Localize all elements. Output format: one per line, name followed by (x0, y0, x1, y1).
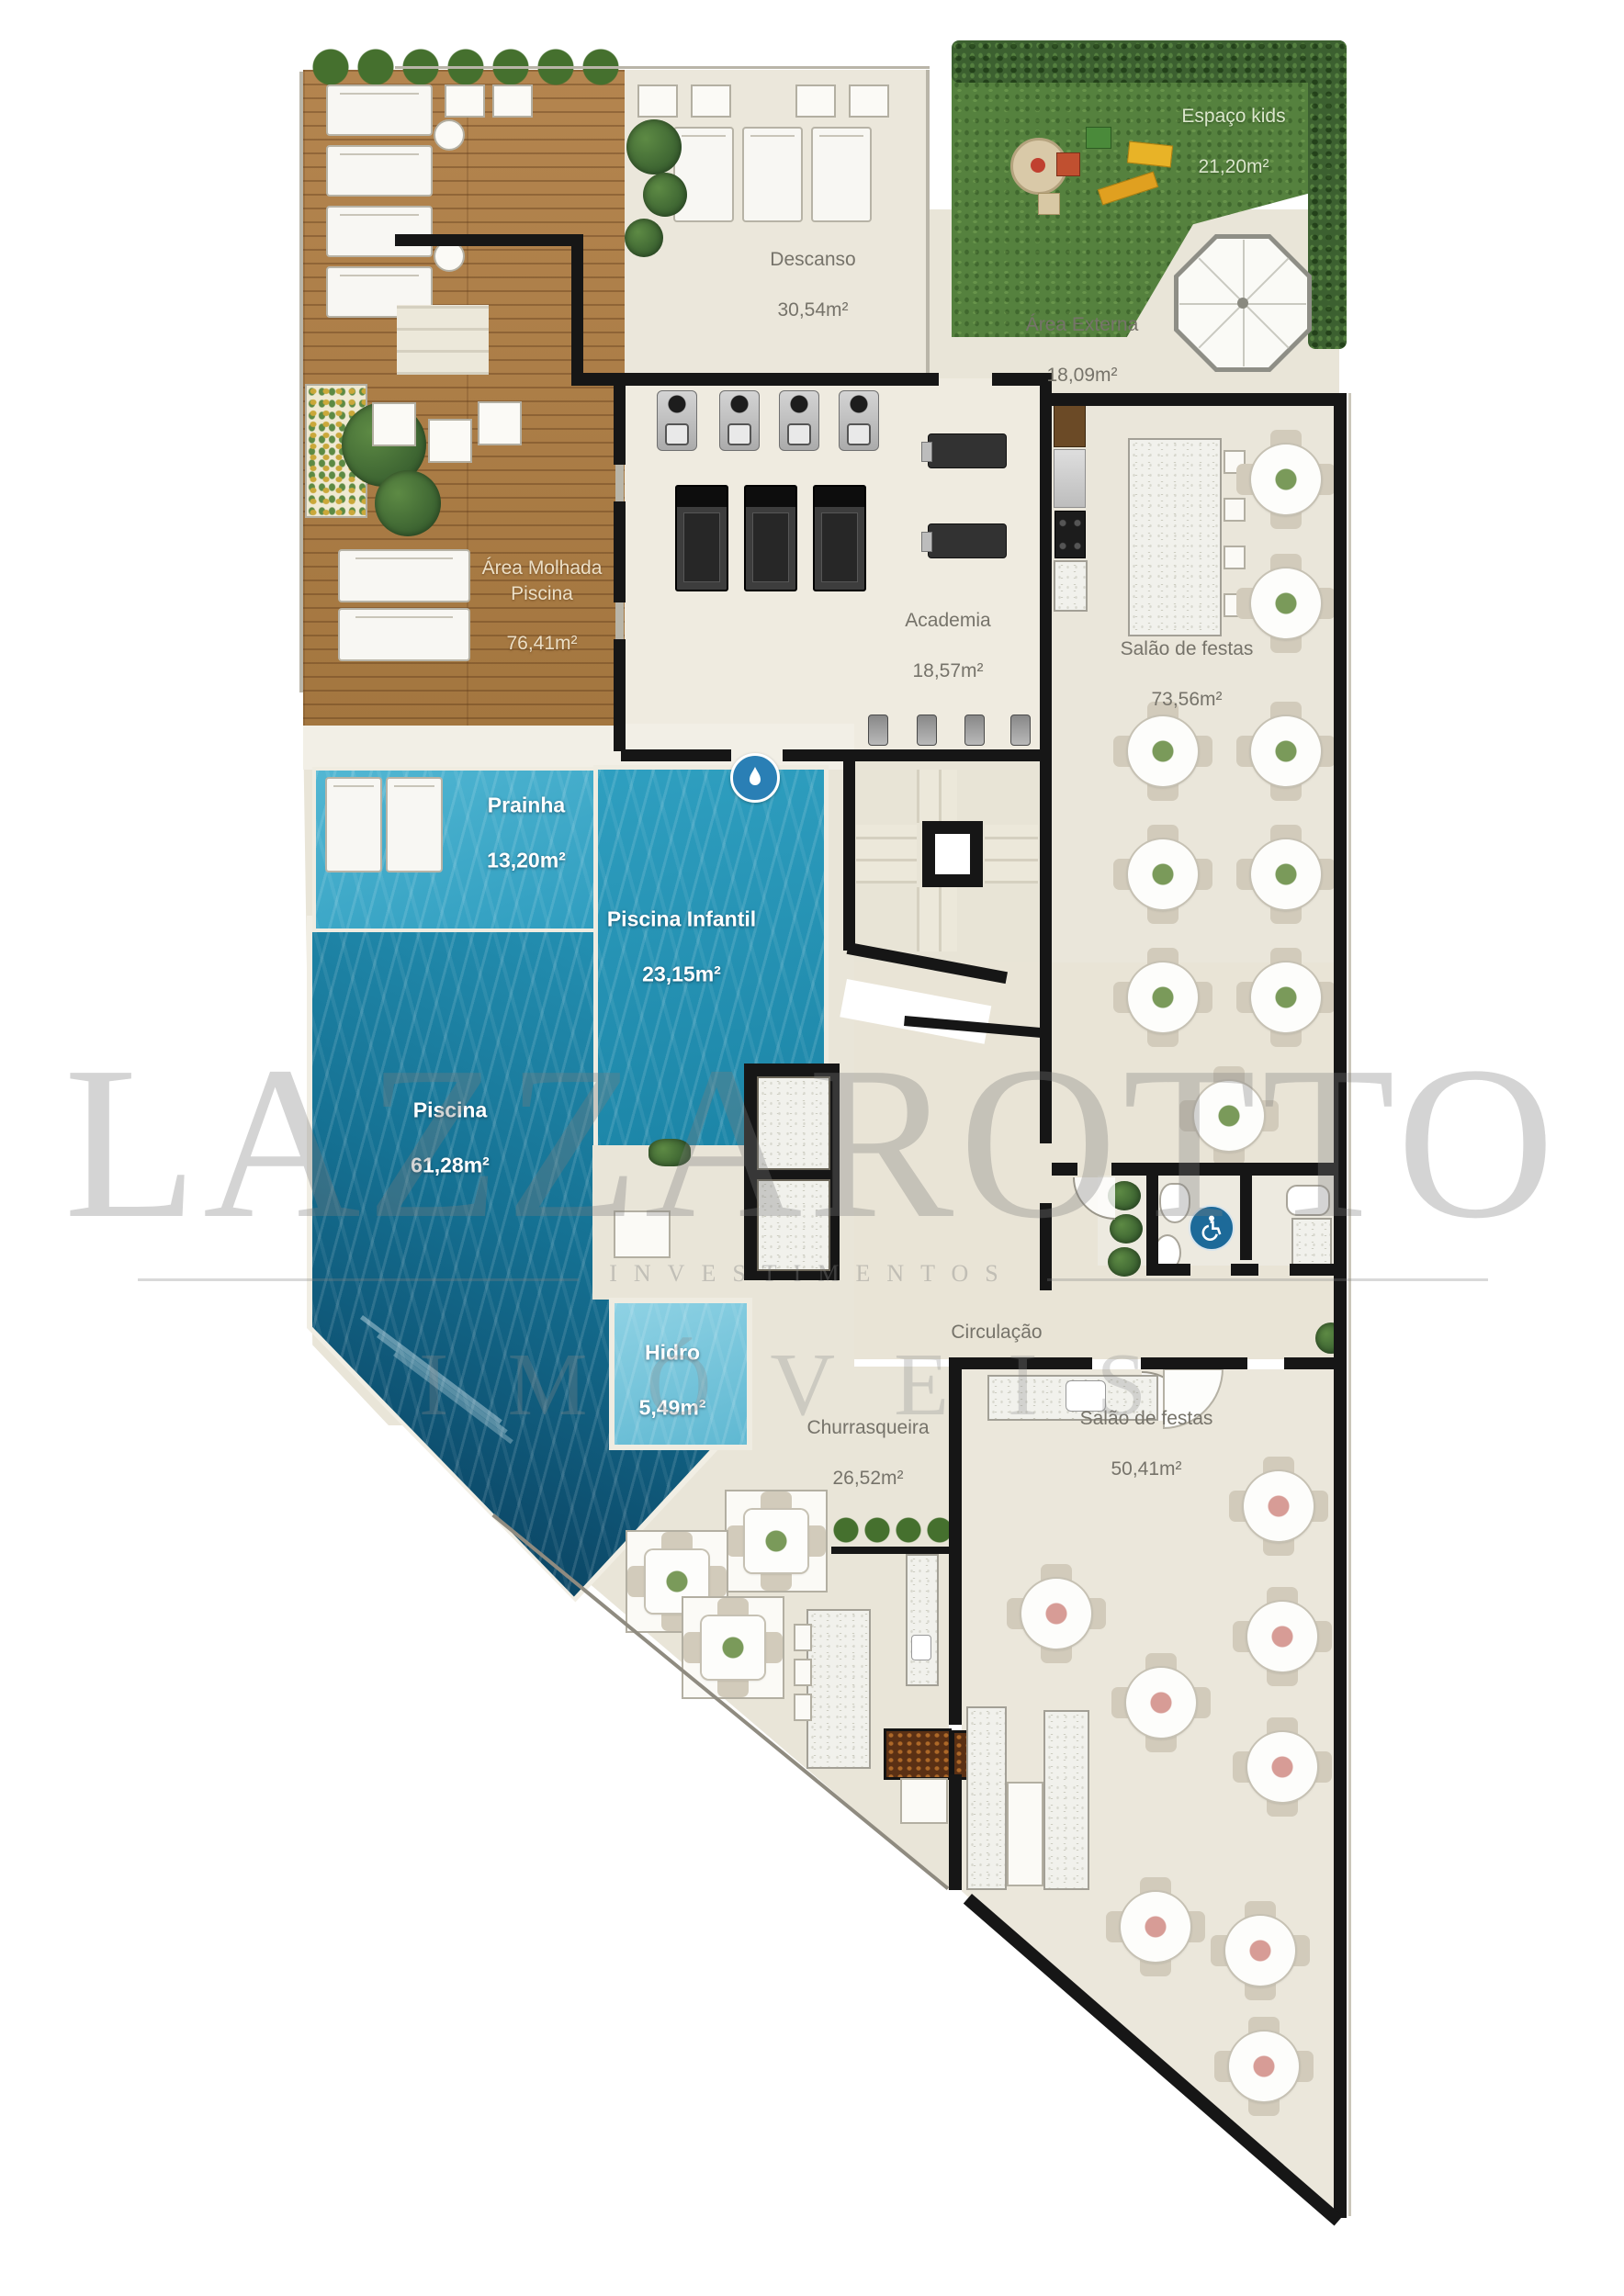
accessible-badge (1189, 1205, 1235, 1251)
room-name: Circulação (951, 1320, 1042, 1345)
party-table (1229, 1457, 1328, 1556)
room-area: 61,28m² (411, 1152, 490, 1179)
chair (1113, 982, 1135, 1013)
room-area: 21,20m² (1181, 154, 1285, 179)
wall (614, 373, 626, 465)
exercise-bike (719, 390, 760, 451)
chair (1007, 1598, 1029, 1629)
room-area: 13,20m² (487, 847, 566, 874)
label-piscina-infantil: Piscina Infantil 23,15m² (607, 878, 756, 1015)
shower-fixture (492, 84, 533, 118)
deck-steps (397, 305, 489, 375)
weight-machine (928, 433, 1007, 468)
label-prainha: Prainha 13,20m² (487, 764, 566, 901)
play-block-green (1086, 127, 1111, 149)
buffet-counter (966, 1706, 1007, 1890)
buffet-counter (1043, 1710, 1089, 1890)
watermark-rule (1047, 1278, 1488, 1281)
treadmill (744, 485, 797, 591)
kitchen-counter (1054, 449, 1086, 508)
wall (614, 639, 626, 751)
chair (1236, 859, 1258, 890)
chair (1233, 1751, 1255, 1783)
sun-lounger (326, 145, 433, 197)
room-area: 50,41m² (1080, 1457, 1213, 1481)
label-churrasqueira: Churrasqueira 26,52m² (806, 1390, 929, 1515)
stair-flight (856, 825, 917, 884)
deck-seat (478, 401, 522, 445)
room-name: Piscina Infantil (607, 906, 756, 933)
wall (843, 761, 855, 951)
bar-counter (1128, 438, 1222, 636)
pool-lounger (325, 777, 382, 872)
party-table (1211, 1901, 1310, 2000)
merry-go-round-center (1031, 158, 1045, 173)
sun-lounger (338, 549, 470, 602)
wall (949, 1357, 962, 1725)
room-name: Descanso (770, 247, 855, 272)
rest-lounger (811, 127, 872, 222)
chair (1106, 1911, 1128, 1942)
label-salao-inferior: Salão de festas 50,41m² (1080, 1381, 1213, 1506)
exercise-bike (839, 390, 879, 451)
room-name: Salão de festas (1121, 636, 1254, 661)
room-name: Prainha (487, 792, 566, 819)
exercise-bike (657, 390, 697, 451)
wall (1146, 1264, 1190, 1276)
wall (1141, 1357, 1247, 1369)
chair (1236, 982, 1258, 1013)
label-hidro: Hidro 5,49m² (639, 1311, 706, 1448)
chair (1179, 1100, 1201, 1131)
bbq-sink (911, 1635, 931, 1660)
dining-table (1236, 825, 1336, 924)
floor-plan: Área Molhada Piscina 76,41m² Descanso 30… (0, 0, 1624, 2296)
dining-table (1236, 430, 1336, 529)
spin-bike (917, 715, 937, 746)
window-line (615, 465, 624, 501)
bbq-cabinet (900, 1778, 948, 1824)
shower-fixture (795, 84, 836, 118)
chair (1214, 2051, 1236, 2082)
label-circulacao: Circulação (951, 1295, 1042, 1370)
exercise-bike (779, 390, 819, 451)
water-drop-icon (740, 763, 770, 793)
room-area: 30,54m² (770, 298, 855, 322)
descanso-right-line (926, 70, 930, 377)
deck-edge-line (299, 72, 303, 692)
sun-lounger (326, 84, 433, 136)
deck-plant (375, 470, 441, 536)
interior-wall (571, 234, 583, 377)
room-name: Hidro (639, 1339, 706, 1367)
play-block (1038, 193, 1060, 215)
wall (1231, 1264, 1258, 1276)
wall (621, 749, 731, 761)
buffet-bench (1007, 1782, 1043, 1886)
party-table (1233, 1587, 1332, 1686)
room-name: Área Molhada Piscina (482, 556, 603, 606)
chair (1236, 736, 1258, 767)
room-name: Churrasqueira (806, 1415, 929, 1440)
wall (1146, 1176, 1158, 1271)
pool-entry-badge (730, 753, 780, 803)
sun-lounger (326, 206, 433, 257)
label-descanso: Descanso 30,54m² (770, 222, 855, 347)
spin-bike (964, 715, 985, 746)
wall (571, 373, 939, 386)
kitchen-counter (1054, 560, 1088, 612)
bbq-counter (806, 1609, 871, 1769)
wall (1284, 1357, 1334, 1369)
bbq-hedge-row (831, 1515, 953, 1547)
play-bar (1127, 141, 1173, 168)
spin-bike (868, 715, 888, 746)
dining-table (1113, 825, 1212, 924)
room-area: 73,56m² (1121, 687, 1254, 712)
deck-seat (372, 402, 416, 446)
stair-flight (985, 825, 1038, 884)
dining-table (1179, 1066, 1279, 1165)
kids-hedge-right (1308, 40, 1347, 349)
interior-wall (395, 234, 583, 246)
sun-lounger (338, 608, 470, 661)
room-area: 5,49m² (639, 1394, 706, 1422)
chair (1233, 1621, 1255, 1652)
label-piscina: Piscina 61,28m² (411, 1069, 490, 1206)
indoor-plant (626, 119, 682, 174)
hedge-wall (831, 1547, 951, 1554)
party-table (1233, 1717, 1332, 1817)
elevator-cab (757, 1179, 830, 1271)
wall (1290, 1264, 1334, 1276)
counter-stool (794, 1659, 812, 1686)
poolside-plant (648, 1139, 691, 1166)
party-table (1106, 1877, 1205, 1976)
room-area: 18,09m² (1026, 363, 1139, 388)
chair (627, 1566, 649, 1597)
indoor-plant (643, 173, 687, 217)
chair (683, 1632, 705, 1663)
treadmill (813, 485, 866, 591)
room-name: Área Externa (1026, 312, 1139, 337)
room-name: Espaço kids (1181, 104, 1285, 129)
kids-hedge-top (952, 40, 1347, 83)
chair (1113, 736, 1135, 767)
shower-stall (1291, 1218, 1332, 1269)
room-name: Piscina (411, 1097, 490, 1124)
decor-plant (1108, 1247, 1141, 1277)
dining-table (1113, 948, 1212, 1047)
rest-lounger (742, 127, 803, 222)
indoor-plant (625, 219, 663, 257)
outer-line-right (1348, 393, 1351, 2216)
weight-machine (928, 523, 1007, 558)
pool-lounger (386, 777, 443, 872)
charcoal-grill (884, 1728, 952, 1780)
toilet (1159, 1183, 1190, 1223)
party-table (1007, 1564, 1106, 1663)
room-name: Salão de festas (1080, 1406, 1213, 1431)
wall (1240, 1176, 1252, 1260)
chair (1236, 464, 1258, 495)
room-area: 18,57m² (905, 658, 990, 683)
chair (1113, 859, 1135, 890)
treadmill (675, 485, 728, 591)
side-table (434, 119, 465, 151)
room-name: Academia (905, 608, 990, 633)
dining-table (1236, 948, 1336, 1047)
chair (1229, 1491, 1251, 1522)
chair (1111, 1687, 1133, 1718)
watermark-rule (138, 1278, 579, 1281)
bathtub (1286, 1185, 1330, 1216)
party-table (1111, 1653, 1211, 1752)
label-espaco-kids: Espaço kids 21,20m² (1181, 79, 1285, 204)
label-salao-superior: Salão de festas 73,56m² (1121, 612, 1254, 737)
label-area-molhada: Área Molhada Piscina 76,41m² (482, 531, 603, 681)
stair-lightwell-void (935, 834, 970, 874)
stair-flight (917, 770, 957, 823)
gazebo-center (1237, 298, 1248, 309)
poolside-table-set (614, 1210, 671, 1258)
wall (614, 501, 626, 602)
wall (1334, 393, 1347, 2218)
top-boundary-line (395, 66, 930, 69)
spin-bike (1010, 715, 1031, 746)
wheelchair-icon (1196, 1212, 1227, 1244)
room-area: 76,41m² (482, 631, 603, 656)
room-area: 26,52m² (806, 1466, 929, 1491)
party-table (1214, 2017, 1314, 2116)
room-area: 23,15m² (607, 961, 756, 988)
counter-stool (794, 1694, 812, 1721)
wall (783, 749, 1052, 761)
wall (1111, 1163, 1334, 1176)
counter-stool (794, 1624, 812, 1651)
chair (727, 1525, 749, 1557)
wall (1052, 1163, 1077, 1176)
shower-fixture (637, 84, 678, 118)
label-academia: Academia 18,57m² (905, 583, 990, 708)
elevator-cab (757, 1076, 830, 1170)
bbq-sink-counter (906, 1554, 939, 1686)
shower-fixture (691, 84, 731, 118)
wall (949, 1774, 962, 1890)
shower-fixture (445, 84, 485, 118)
label-area-externa: Área Externa 18,09m² (1026, 287, 1139, 412)
window-line (615, 602, 624, 639)
deck-seat (428, 419, 472, 463)
chair (1211, 1935, 1233, 1966)
shower-fixture (849, 84, 889, 118)
wall (1040, 1203, 1052, 1290)
stove (1054, 511, 1086, 558)
play-block-red (1056, 152, 1080, 176)
gazebo (1174, 234, 1312, 372)
stair-flight (917, 887, 957, 951)
